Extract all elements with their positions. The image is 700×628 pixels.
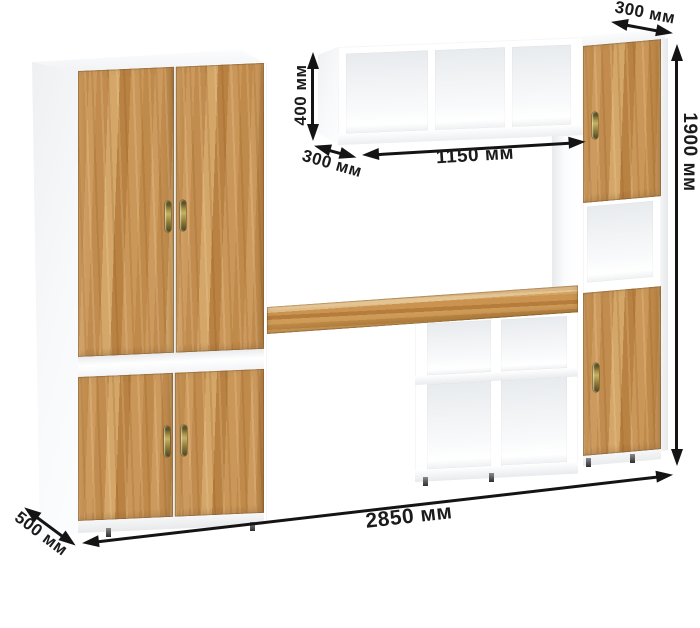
wardrobe-upper-door-right: [176, 63, 264, 353]
cube-foot-left: [423, 477, 428, 486]
wardrobe-foot-left: [106, 528, 111, 537]
wall-shelf-body: [338, 37, 583, 145]
desk-side-column: [552, 136, 580, 290]
cube-cell-top-right: [501, 316, 567, 371]
dim-label-overall-width: 2850 мм: [364, 500, 453, 534]
cube-foot-right: [489, 473, 494, 482]
wall-shelf-compartment-3: [512, 45, 571, 127]
dim-label-shelf-height: 400 мм: [291, 64, 311, 125]
wardrobe-upper-door-left: [78, 67, 174, 357]
cabinet-upper-handle: [592, 112, 598, 139]
wall-shelf-compartment-2: [435, 47, 505, 130]
wardrobe-left-side-panel: [32, 62, 78, 548]
arrowhead-icon: [655, 469, 673, 483]
cube-shelf-body: [415, 309, 578, 482]
wardrobe-body: [78, 63, 267, 533]
wardrobe-upper-handle-right: [180, 200, 186, 231]
cube-cell-bottom-right: [501, 377, 567, 465]
dim-label-shelf-width: 1150 мм: [435, 143, 514, 170]
wardrobe-lower-handle-left: [164, 426, 170, 457]
cube-cell-bottom-left: [427, 381, 491, 469]
dimension-line: [312, 66, 315, 127]
arrowhead-icon: [671, 449, 683, 466]
wardrobe-upper-door-gap: [173, 67, 176, 353]
arrowhead-icon: [568, 136, 586, 149]
wall-shelf-left-side-panel: [318, 47, 338, 145]
wardrobe-lower-door-right: [175, 369, 264, 517]
wardrobe-upper-handle-left: [165, 201, 171, 232]
wardrobe-lower-handle-right: [181, 425, 187, 456]
dim-label-overall-height: 1900 мм: [678, 112, 700, 191]
cabinet-foot-left: [586, 458, 591, 467]
cabinet-foot-right: [630, 454, 635, 463]
wardrobe-lower-door-gap: [172, 373, 175, 517]
wall-shelf-compartment-1: [346, 50, 428, 133]
wardrobe-lower-door-left: [78, 373, 173, 521]
cabinet-right-side-panel: [660, 38, 668, 451]
cabinet-open-compartment: [587, 201, 653, 283]
cube-cell-top-left: [427, 320, 491, 375]
cabinet-body: [583, 39, 661, 466]
product-dimension-diagram: 300 мм 1900 мм 400 мм 300 мм 1150 мм 500…: [0, 0, 700, 628]
cabinet-lower-handle: [593, 363, 599, 392]
arrowhead-icon: [307, 124, 319, 141]
